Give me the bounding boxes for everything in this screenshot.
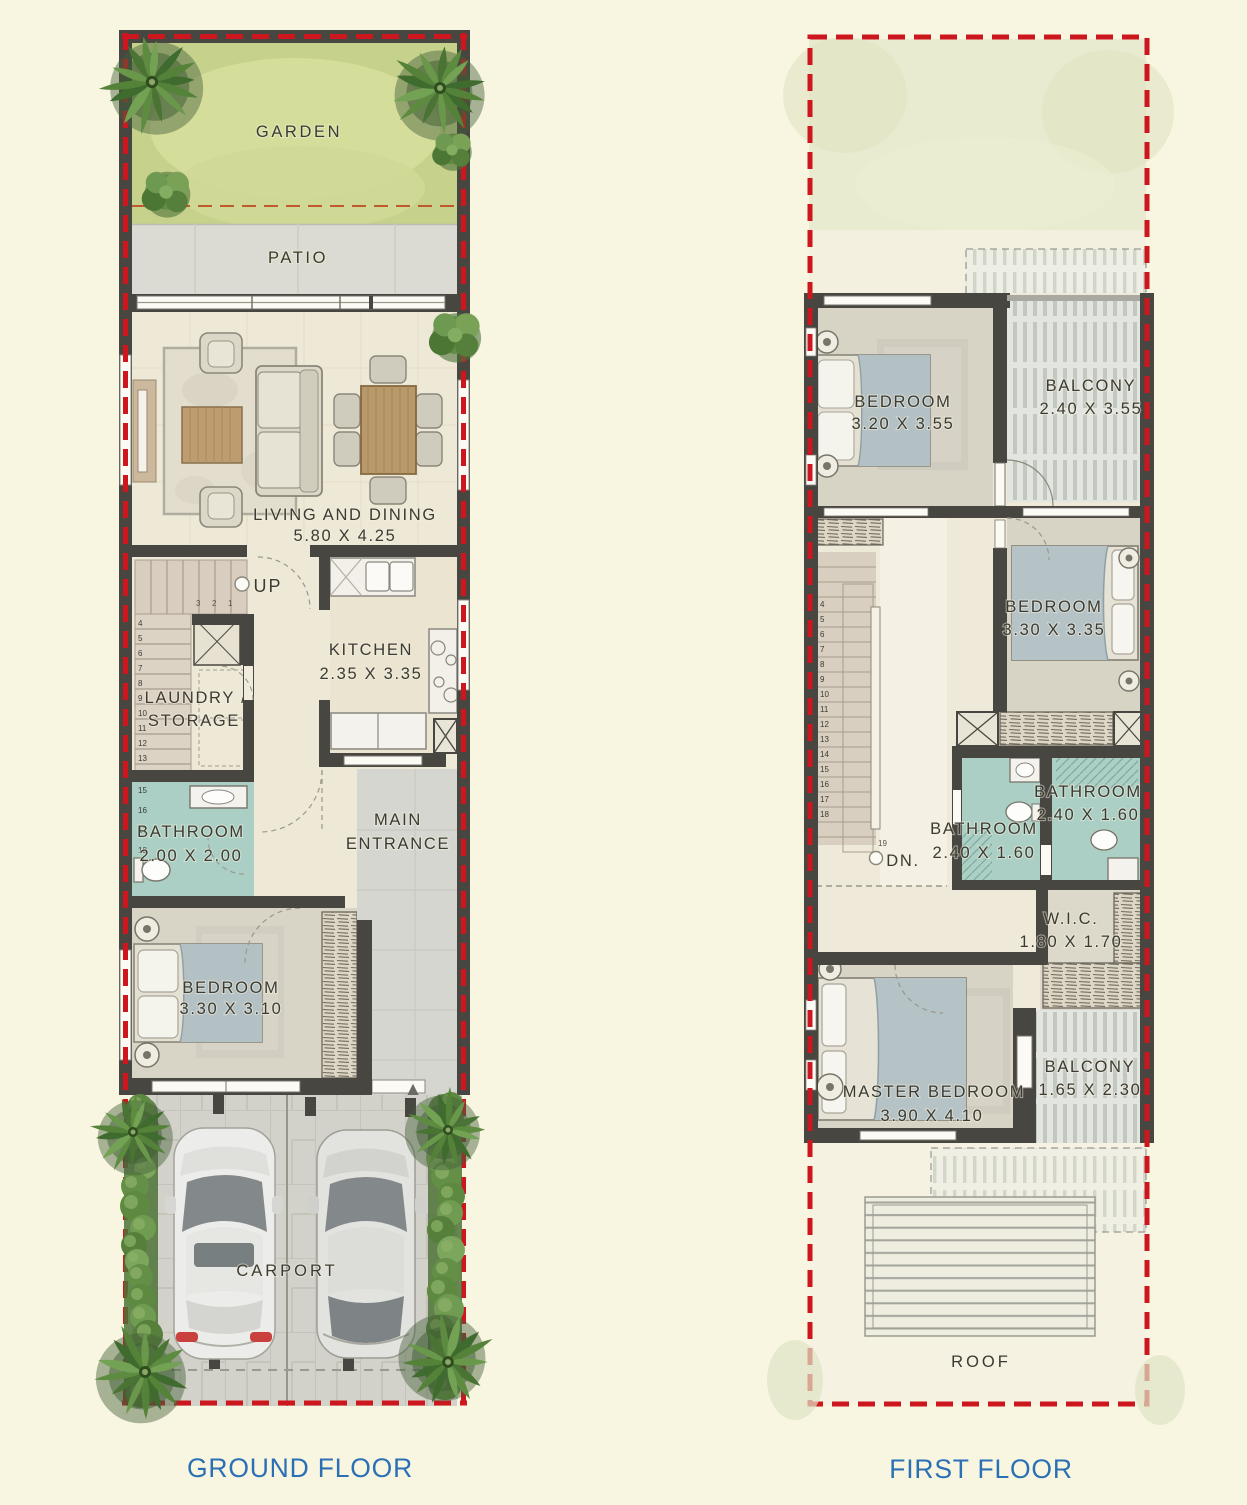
svg-text:9: 9 [820, 675, 825, 684]
svg-text:11: 11 [820, 705, 829, 714]
svg-text:LAUNDRY /: LAUNDRY / [145, 689, 248, 707]
svg-text:7: 7 [138, 664, 143, 673]
svg-text:6: 6 [820, 630, 825, 639]
svg-text:BEDROOM: BEDROOM [182, 979, 279, 997]
svg-text:BALCONY: BALCONY [1046, 377, 1137, 395]
svg-text:BEDROOM: BEDROOM [1005, 598, 1102, 616]
svg-text:DN.: DN. [886, 852, 920, 870]
svg-text:8: 8 [138, 679, 143, 688]
svg-text:17: 17 [820, 795, 829, 804]
svg-text:7: 7 [820, 645, 825, 654]
svg-text:6: 6 [138, 649, 143, 658]
svg-text:BALCONY: BALCONY [1045, 1058, 1136, 1076]
svg-text:18: 18 [820, 810, 829, 819]
svg-text:2: 2 [212, 599, 217, 608]
svg-text:FIRST FLOOR: FIRST FLOOR [889, 1454, 1073, 1484]
svg-text:9: 9 [138, 694, 143, 703]
svg-text:MASTER BEDROOM: MASTER BEDROOM [843, 1083, 1025, 1101]
svg-text:5: 5 [138, 634, 143, 643]
svg-text:BEDROOM: BEDROOM [854, 393, 951, 411]
svg-text:2.40 X 1.60: 2.40 X 1.60 [932, 844, 1035, 862]
svg-text:GROUND FLOOR: GROUND FLOOR [187, 1453, 413, 1483]
svg-text:UP: UP [253, 576, 282, 596]
svg-text:3.90 X 4.10: 3.90 X 4.10 [880, 1107, 983, 1125]
svg-text:16: 16 [138, 806, 147, 815]
svg-text:2.40 X 1.60: 2.40 X 1.60 [1036, 806, 1139, 824]
svg-text:3.30 X 3.35: 3.30 X 3.35 [1002, 621, 1105, 639]
svg-text:5: 5 [820, 615, 825, 624]
svg-text:W.I.C.: W.I.C. [1043, 910, 1098, 928]
svg-text:BATHROOM: BATHROOM [1034, 783, 1142, 801]
svg-text:15: 15 [820, 765, 829, 774]
svg-text:14: 14 [820, 750, 829, 759]
svg-text:13: 13 [820, 735, 829, 744]
svg-text:13: 13 [138, 754, 147, 763]
svg-text:1.80 X 1.70: 1.80 X 1.70 [1019, 933, 1122, 951]
svg-text:12: 12 [820, 720, 829, 729]
svg-text:11: 11 [138, 724, 147, 733]
svg-text:PATIO: PATIO [268, 249, 328, 267]
svg-text:2.00 X 2.00: 2.00 X 2.00 [139, 847, 242, 865]
svg-text:LIVING AND DINING: LIVING AND DINING [253, 506, 437, 524]
svg-text:10: 10 [138, 709, 147, 718]
svg-text:CARPORT: CARPORT [236, 1262, 337, 1280]
svg-text:4: 4 [820, 600, 825, 609]
svg-text:15: 15 [138, 786, 147, 795]
svg-text:STORAGE: STORAGE [148, 712, 240, 730]
svg-text:3: 3 [196, 599, 201, 608]
svg-text:5.80 X 4.25: 5.80 X 4.25 [293, 527, 396, 545]
svg-text:12: 12 [138, 739, 147, 748]
svg-text:GARDEN: GARDEN [256, 123, 342, 141]
svg-text:ROOF: ROOF [951, 1353, 1011, 1371]
svg-text:BATHROOM: BATHROOM [137, 823, 245, 841]
svg-text:4: 4 [138, 619, 143, 628]
svg-text:19: 19 [878, 839, 887, 848]
svg-text:1: 1 [228, 599, 233, 608]
svg-text:ENTRANCE: ENTRANCE [346, 835, 450, 853]
svg-text:2.35 X 3.35: 2.35 X 3.35 [319, 665, 422, 683]
svg-text:16: 16 [820, 780, 829, 789]
svg-text:KITCHEN: KITCHEN [329, 641, 413, 659]
svg-text:3.20 X 3.55: 3.20 X 3.55 [851, 415, 954, 433]
svg-text:1.65 X 2.30: 1.65 X 2.30 [1038, 1081, 1141, 1099]
svg-text:10: 10 [820, 690, 829, 699]
svg-text:MAIN: MAIN [374, 811, 422, 829]
svg-text:3.30 X 3.10: 3.30 X 3.10 [179, 1000, 282, 1018]
svg-text:2.40 X 3.55: 2.40 X 3.55 [1039, 400, 1142, 418]
svg-text:BATHROOM: BATHROOM [930, 820, 1038, 838]
svg-text:8: 8 [820, 660, 825, 669]
